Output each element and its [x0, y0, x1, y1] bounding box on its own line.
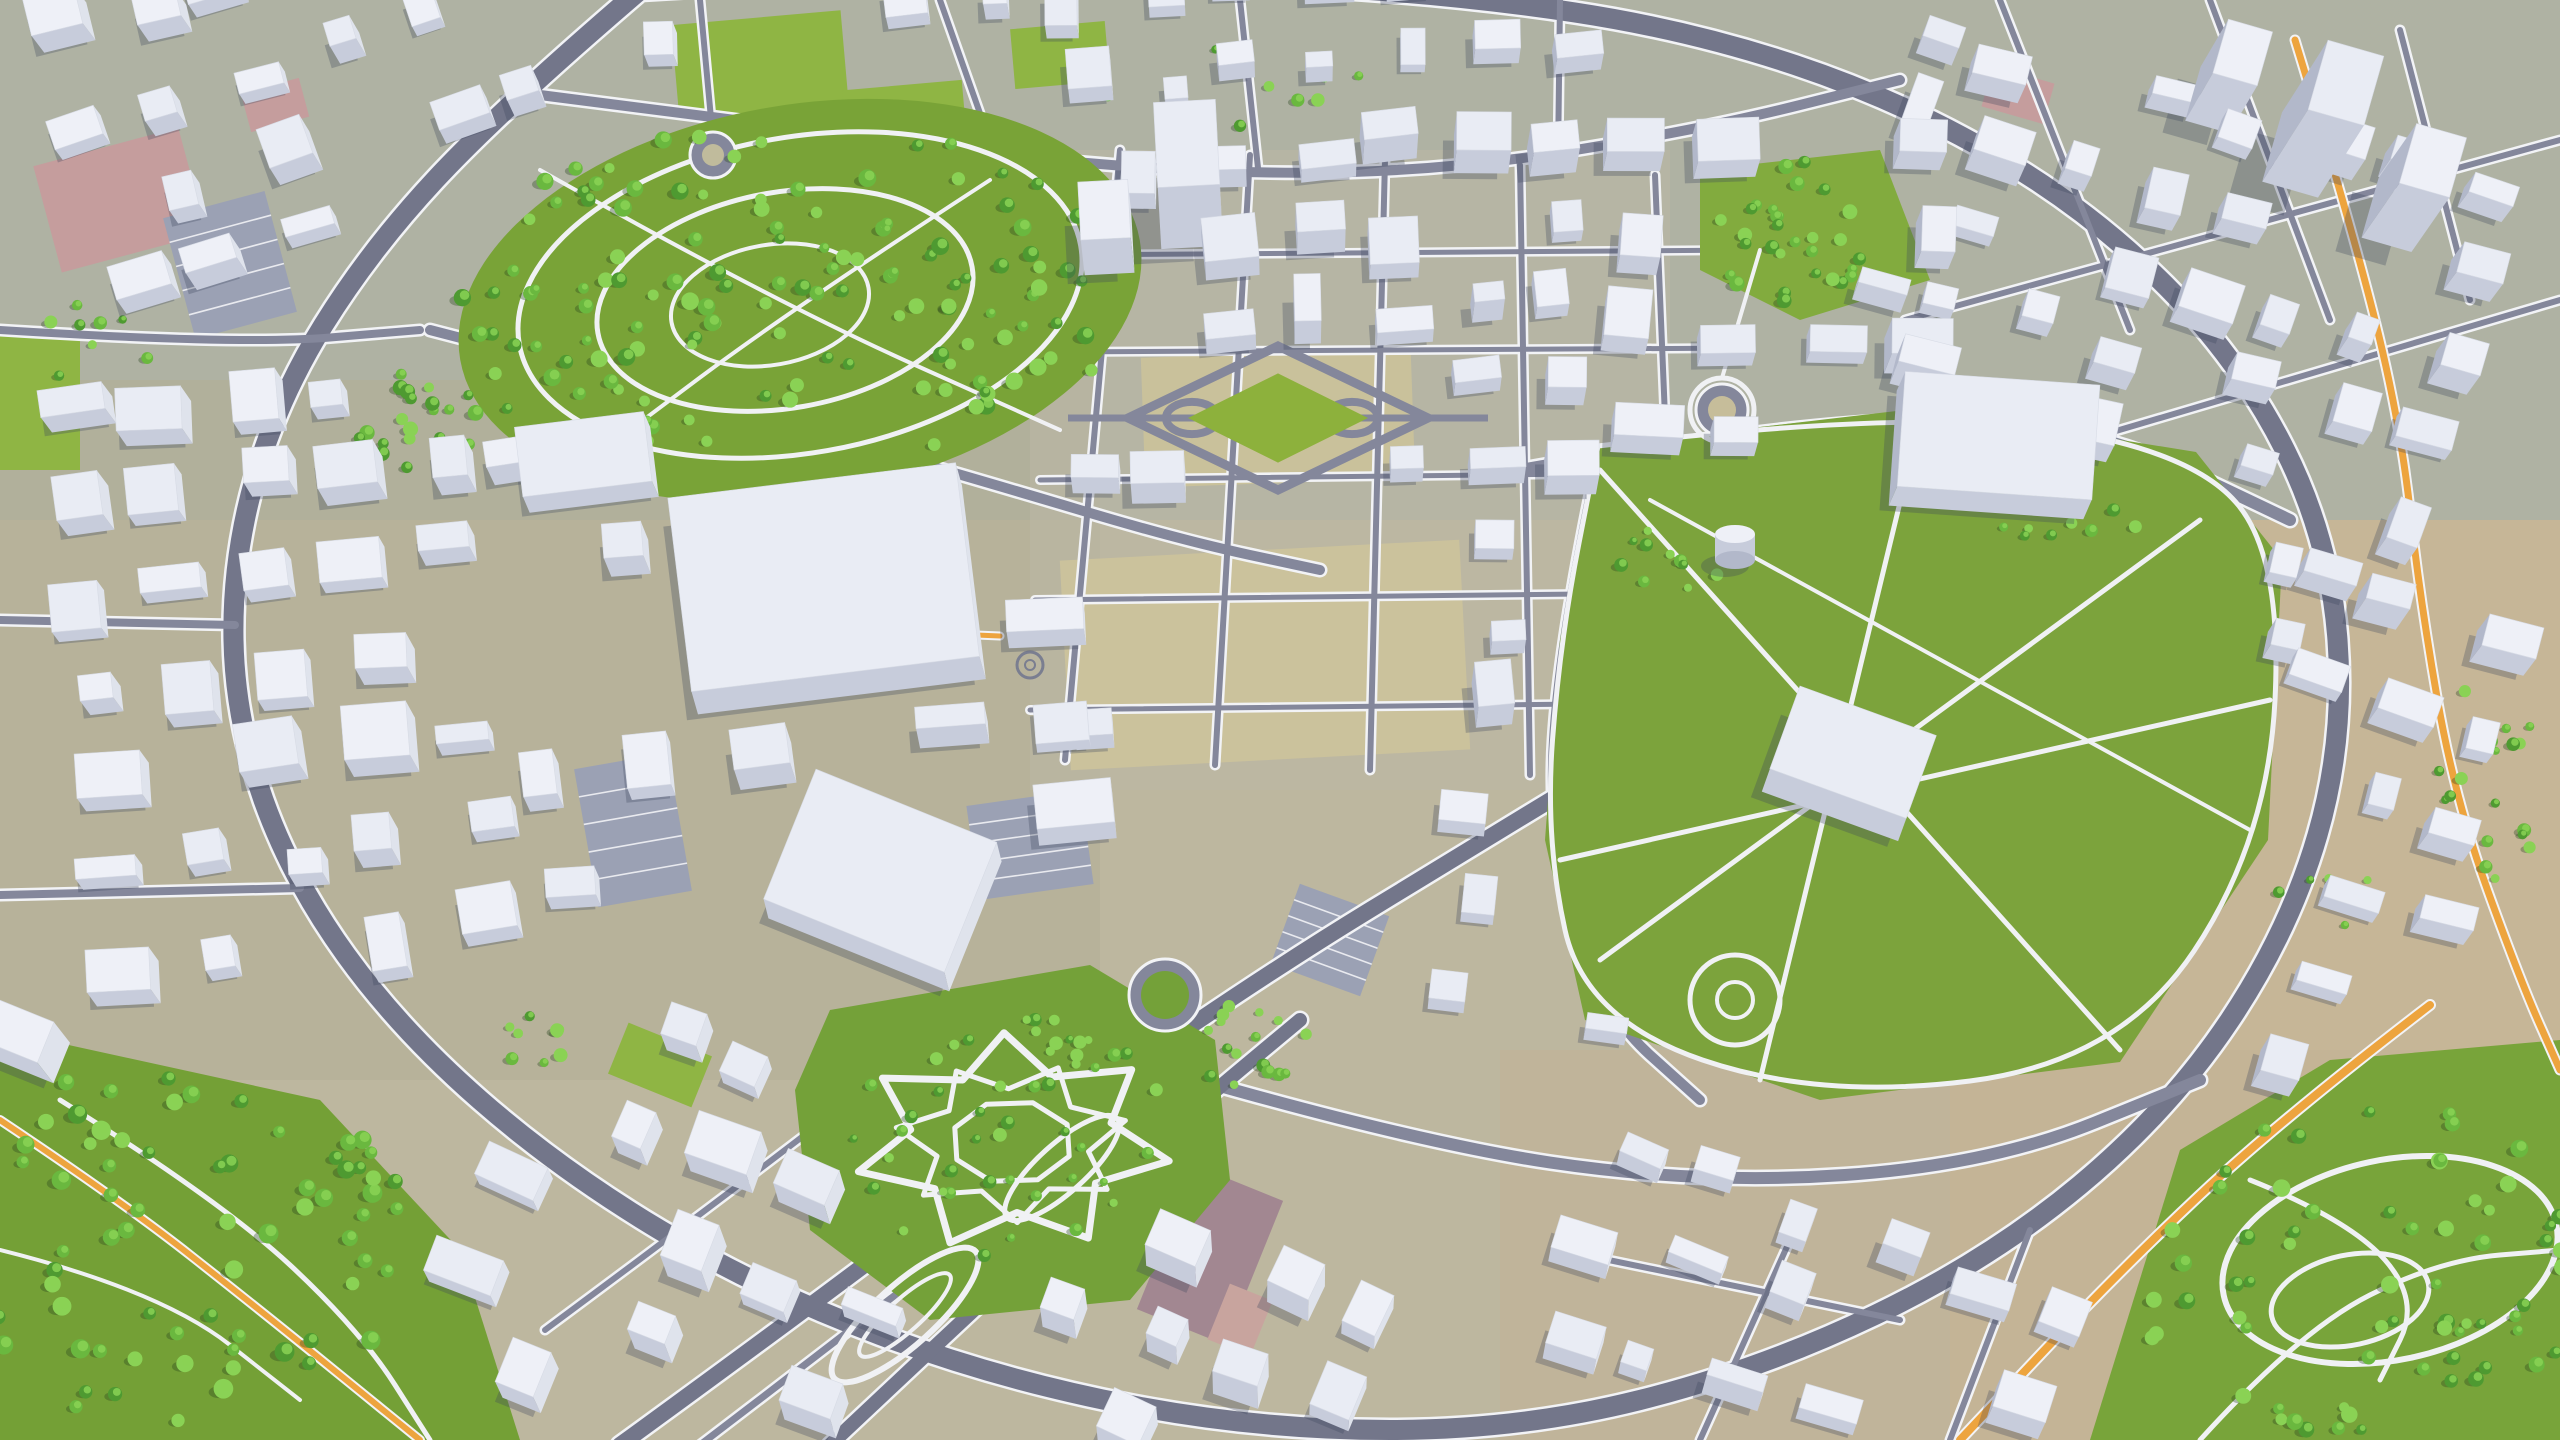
tree-highlight: [1064, 1128, 1069, 1133]
building: [1603, 118, 1664, 171]
tree-highlight: [477, 327, 486, 336]
tree-highlight: [1035, 1027, 1040, 1032]
tree-highlight: [998, 1129, 1006, 1137]
building-wall: [1472, 299, 1505, 323]
tree-highlight: [1632, 538, 1637, 543]
building: [239, 548, 296, 603]
tree-highlight: [113, 1388, 121, 1396]
building-roof: [1607, 118, 1664, 151]
tree-highlight: [1682, 560, 1687, 565]
tree-highlight: [1647, 527, 1652, 532]
building-wall: [1071, 477, 1120, 494]
tree-highlight: [2263, 1124, 2270, 1131]
tree-highlight: [1770, 241, 1778, 249]
building: [455, 881, 523, 947]
tree-highlight: [1316, 94, 1323, 101]
tree-highlight: [133, 1353, 141, 1361]
tree-highlight: [2486, 836, 2493, 843]
building: [1148, 0, 1186, 18]
building-roof: [354, 632, 407, 668]
tree-highlight: [2218, 1181, 2226, 1189]
tree-highlight: [166, 1072, 174, 1080]
tree-highlight: [949, 359, 955, 365]
tree-highlight: [1083, 328, 1093, 338]
tree-highlight: [321, 1190, 331, 1200]
building: [1201, 213, 1260, 281]
tree-highlight: [1254, 1033, 1259, 1038]
building-roof: [1216, 40, 1254, 66]
building-roof: [1473, 281, 1505, 302]
tree-highlight: [934, 1053, 941, 1060]
tree-highlight: [1033, 1081, 1040, 1088]
tree-highlight: [1357, 72, 1362, 77]
tree-highlight: [371, 1172, 379, 1180]
tree-highlight: [1823, 184, 1830, 191]
tree-highlight: [2366, 877, 2370, 881]
building-roof: [313, 439, 378, 488]
building-roof: [729, 723, 790, 770]
tree-highlight: [1735, 277, 1743, 285]
building: [232, 716, 308, 788]
tree-highlight: [510, 1053, 517, 1060]
tree-highlight: [939, 348, 948, 357]
building-wall: [1297, 229, 1346, 255]
tree-highlight: [2480, 1236, 2489, 1245]
building-roof: [123, 463, 178, 515]
tree-highlight: [635, 342, 643, 350]
building: [1545, 357, 1587, 406]
building-roof: [1457, 112, 1512, 151]
building: [1527, 120, 1580, 177]
tree-highlight: [78, 1341, 89, 1352]
tree-highlight: [1090, 365, 1097, 372]
building-wall: [1400, 65, 1425, 73]
tree-highlight: [50, 1277, 59, 1286]
tree-highlight: [369, 1147, 376, 1154]
tree-highlight: [2410, 1223, 2417, 1230]
tree-highlight: [550, 370, 560, 380]
tree-highlight: [672, 275, 681, 284]
tree-highlight: [978, 376, 986, 384]
building-wall: [1693, 159, 1760, 179]
tree-highlight: [1037, 281, 1046, 290]
tree-highlight: [542, 174, 551, 183]
tree-highlight: [1795, 177, 1803, 185]
tree-highlight: [2521, 830, 2526, 835]
tree-highlight: [909, 1111, 916, 1118]
tree-highlight: [2296, 1130, 2304, 1138]
tree-highlight: [305, 1181, 314, 1190]
tree-highlight: [2170, 1223, 2179, 1232]
tree-highlight: [59, 1298, 69, 1308]
tree-highlight: [826, 353, 832, 359]
tree-highlight: [1009, 1176, 1014, 1181]
tree-highlight: [1793, 237, 1799, 243]
tree-highlight: [88, 1138, 95, 1145]
building-wall: [1369, 262, 1419, 279]
tree-highlight: [91, 341, 96, 346]
building-roof: [77, 672, 113, 701]
tree-highlight: [688, 415, 694, 421]
building-roof: [1201, 213, 1259, 262]
city-3d-render: [0, 0, 2560, 1440]
building-wall: [1545, 387, 1587, 405]
tree-highlight: [302, 1200, 312, 1210]
tree-highlight: [124, 1223, 133, 1232]
tree-highlight: [1012, 374, 1021, 383]
tree-highlight: [932, 439, 939, 446]
tree-highlight: [182, 1356, 192, 1366]
building: [882, 0, 930, 29]
tree-highlight: [2368, 1107, 2374, 1113]
tree-highlight: [369, 1185, 380, 1196]
building-wall: [1544, 475, 1599, 495]
building: [1071, 454, 1121, 493]
tree-highlight: [408, 423, 416, 431]
tree-highlight: [937, 1087, 943, 1093]
tree-highlight: [1811, 233, 1817, 239]
roundabout-island: [1141, 971, 1189, 1019]
tree-highlight: [361, 1209, 369, 1217]
building: [1367, 216, 1419, 280]
tree-highlight: [840, 285, 847, 292]
building: [340, 701, 419, 777]
tree-highlight: [405, 385, 413, 393]
tree-highlight: [584, 300, 592, 308]
building-roof: [1552, 200, 1584, 233]
tree-highlight: [265, 1225, 276, 1236]
tree-highlight: [2336, 1423, 2343, 1430]
tree-highlight: [1112, 1049, 1120, 1057]
building: [1360, 106, 1419, 164]
building-roof: [1294, 273, 1322, 321]
tree-highlight: [2234, 1278, 2242, 1286]
tree-highlight: [1782, 295, 1790, 303]
building-wall: [1476, 703, 1515, 728]
building: [354, 632, 417, 685]
tree-highlight: [1049, 352, 1056, 359]
tree-highlight: [615, 250, 623, 258]
building-roof: [1005, 597, 1084, 632]
tree-highlight: [1296, 94, 1303, 101]
tree-highlight: [948, 1188, 955, 1195]
tree-highlight: [2488, 1206, 2494, 1212]
tree-highlight: [1094, 1063, 1099, 1068]
tree-highlight: [347, 1231, 356, 1240]
building: [622, 731, 676, 800]
building-roof: [1461, 873, 1498, 915]
building-wall: [983, 3, 1010, 19]
tree-highlight: [1080, 1143, 1085, 1148]
tree-highlight: [467, 391, 473, 397]
tree-highlight: [2050, 530, 2056, 536]
building-roof: [455, 881, 517, 935]
tree-highlight: [815, 287, 823, 295]
tree-highlight: [492, 287, 499, 294]
tree-highlight: [1075, 1050, 1082, 1057]
tree-highlight: [693, 233, 701, 241]
building-roof: [1548, 440, 1600, 476]
tree-highlight: [2292, 1226, 2299, 1233]
building: [668, 463, 986, 715]
building: [1616, 213, 1663, 275]
tree-highlight: [2494, 799, 2499, 804]
building: [1550, 200, 1584, 243]
tree-highlight: [2522, 1299, 2529, 1306]
tree-highlight: [543, 1059, 548, 1064]
building-wall: [355, 666, 416, 685]
tree-highlight: [847, 359, 853, 365]
tree-highlight: [778, 328, 785, 335]
building-roof: [429, 435, 468, 478]
tree-highlight: [796, 183, 804, 191]
tree-highlight: [76, 301, 82, 307]
tree-highlight: [2458, 1328, 2464, 1334]
building-roof: [1810, 325, 1868, 353]
building-wall: [1045, 25, 1079, 38]
tree-highlight: [2494, 875, 2499, 880]
tree-highlight: [448, 405, 454, 411]
tree-highlight: [2150, 1331, 2158, 1339]
building: [1204, 309, 1257, 355]
building-roof: [1701, 325, 1756, 354]
tree-highlight: [949, 1165, 956, 1172]
tree-highlight: [2309, 876, 2314, 881]
building-roof: [239, 548, 289, 591]
tree-highlight: [2238, 1312, 2246, 1320]
tree-highlight: [732, 151, 740, 159]
building-roof: [1475, 520, 1514, 549]
tree-highlight: [2450, 1117, 2459, 1126]
building-roof: [1714, 417, 1758, 443]
tree-highlight: [1719, 215, 1725, 221]
tree-highlight: [2181, 1256, 2190, 1265]
tree-highlight: [632, 181, 641, 190]
tree-highlight: [490, 328, 498, 336]
tree-highlight: [704, 299, 714, 309]
tree-highlight: [815, 208, 821, 214]
tree-highlight: [1075, 1060, 1080, 1065]
tree-highlight: [795, 379, 803, 387]
building-roof: [1065, 46, 1112, 89]
tree-highlight: [136, 1204, 144, 1212]
tree-highlight: [220, 1380, 231, 1391]
building-roof: [643, 21, 673, 55]
tree-highlight: [120, 1133, 129, 1142]
tree-highlight: [2459, 773, 2466, 780]
tree-highlight: [778, 234, 784, 240]
tree-highlight: [1669, 550, 1674, 555]
tree-highlight: [687, 294, 697, 304]
tree-highlight: [777, 277, 785, 285]
tree-highlight: [1036, 178, 1043, 185]
tree-highlight: [175, 1327, 183, 1335]
tree-highlight: [473, 406, 482, 415]
building-roof: [1305, 51, 1332, 68]
building-roof: [1033, 701, 1089, 744]
building-wall: [244, 480, 298, 496]
tree-highlight: [239, 1095, 247, 1103]
tree-highlight: [189, 1087, 199, 1097]
tree-highlight: [989, 309, 995, 315]
building-roof: [1071, 454, 1119, 477]
tree-highlight: [2422, 1363, 2429, 1370]
building-roof: [1470, 446, 1526, 468]
tree-highlight: [21, 1157, 28, 1164]
tree-highlight: [1729, 271, 1735, 277]
tree-highlight: [534, 285, 540, 291]
building: [1130, 451, 1186, 504]
tree-highlight: [693, 332, 701, 340]
tree-highlight: [351, 1278, 358, 1285]
tree-highlight: [831, 263, 838, 270]
building-roof: [1897, 372, 2100, 500]
tree-highlight: [691, 340, 697, 346]
tree-highlight: [237, 1330, 245, 1338]
tree-highlight: [558, 1049, 566, 1057]
tree-highlight: [594, 177, 602, 185]
tree-highlight: [2292, 1414, 2301, 1423]
tree-highlight: [582, 186, 589, 193]
building-roof: [668, 463, 980, 692]
tree-highlight: [1776, 220, 1782, 226]
tree-highlight: [98, 317, 105, 324]
building-roof: [74, 750, 142, 799]
tree-highlight: [2505, 724, 2510, 729]
tree-highlight: [1839, 234, 1846, 241]
building-roof: [1620, 213, 1663, 258]
tree-highlight: [872, 1183, 879, 1190]
building: [85, 947, 161, 1007]
building: [1893, 118, 1948, 170]
tree-highlight: [2483, 1362, 2490, 1369]
tree-highlight: [620, 200, 630, 210]
tree-highlight: [393, 1175, 401, 1183]
tree-highlight: [982, 1250, 989, 1257]
tree-highlight: [760, 137, 767, 144]
building-roof: [1153, 99, 1219, 187]
building: [915, 702, 990, 748]
building-wall: [1454, 150, 1511, 174]
tree-highlight: [2484, 861, 2491, 868]
tree-highlight: [988, 1176, 995, 1183]
building-roof: [1531, 120, 1580, 153]
tree-highlight: [869, 1080, 876, 1087]
tree-highlight: [564, 356, 572, 364]
tree-highlight: [661, 133, 670, 142]
tree-highlight: [582, 284, 588, 290]
tree-highlight: [1258, 1009, 1263, 1014]
building: [1889, 372, 2100, 520]
tree-highlight: [902, 1227, 907, 1232]
tree-highlight: [1054, 1037, 1062, 1045]
tree-highlight: [1840, 277, 1847, 284]
tree-highlight: [57, 371, 63, 377]
tree-highlight: [49, 316, 56, 323]
tree-highlight: [2380, 1321, 2387, 1328]
building: [1531, 268, 1569, 319]
tree-highlight: [2090, 525, 2097, 532]
building-roof: [601, 521, 643, 558]
building: [74, 750, 152, 812]
tree-highlight: [2002, 523, 2007, 528]
tree-highlight: [2444, 1222, 2453, 1231]
tree-highlight: [1021, 321, 1027, 327]
tree-highlight: [555, 197, 562, 204]
tree-highlight: [1750, 204, 1756, 210]
tree-highlight: [953, 1040, 959, 1046]
building: [1468, 446, 1526, 485]
tree-highlight: [956, 173, 963, 180]
tree-highlight: [227, 1156, 237, 1166]
tree-highlight: [2112, 504, 2119, 511]
tree-highlight: [1053, 1016, 1059, 1022]
building: [416, 521, 477, 566]
tree-highlight: [176, 1415, 183, 1422]
tree-highlight: [724, 280, 732, 288]
tree-highlight: [1857, 253, 1864, 260]
tree-highlight: [2279, 1181, 2289, 1191]
tree-highlight: [975, 1135, 980, 1140]
tree-highlight: [1851, 265, 1857, 271]
tree-highlight: [1803, 157, 1810, 164]
building: [48, 580, 109, 642]
tree-highlight: [702, 190, 708, 196]
tree-highlight: [1784, 160, 1792, 168]
building-roof: [468, 796, 515, 832]
tree-highlight: [121, 316, 126, 321]
tree-highlight: [534, 341, 541, 348]
building-roof: [518, 749, 557, 798]
tree-highlight: [1815, 269, 1821, 275]
tree-highlight: [597, 352, 606, 361]
building-wall: [1806, 351, 1867, 364]
building: [468, 796, 520, 842]
tree-highlight: [1208, 1071, 1215, 1078]
tree-highlight: [2224, 1166, 2231, 1173]
tree-highlight: [147, 1147, 154, 1154]
tree-highlight: [98, 1122, 109, 1133]
building-roof: [201, 935, 236, 971]
building: [514, 412, 658, 513]
tree-highlight: [23, 1137, 33, 1147]
tree-highlight: [617, 273, 626, 282]
tree-highlight: [1068, 1036, 1073, 1041]
tree-highlight: [282, 1343, 293, 1354]
building: [1472, 659, 1515, 728]
tree-highlight: [493, 368, 500, 375]
tree-highlight: [358, 433, 364, 439]
tree-highlight: [964, 274, 970, 280]
building-roof: [351, 812, 392, 851]
ground-patch: [1060, 540, 1470, 771]
tree-highlight: [967, 1035, 973, 1041]
road: [0, 620, 235, 625]
building-wall: [1616, 255, 1660, 276]
building: [1389, 446, 1423, 483]
tree-highlight: [885, 219, 892, 226]
building-wall: [1295, 321, 1322, 345]
tree-highlight: [2473, 1195, 2480, 1202]
tree-highlight: [937, 239, 947, 249]
tree-highlight: [346, 1135, 355, 1144]
building-roof: [1533, 268, 1569, 307]
building-roof: [182, 828, 224, 865]
tree-highlight: [2133, 521, 2140, 528]
building-roof: [982, 0, 1007, 4]
tree-highlight: [1227, 1001, 1234, 1008]
tree-highlight: [231, 1344, 238, 1351]
